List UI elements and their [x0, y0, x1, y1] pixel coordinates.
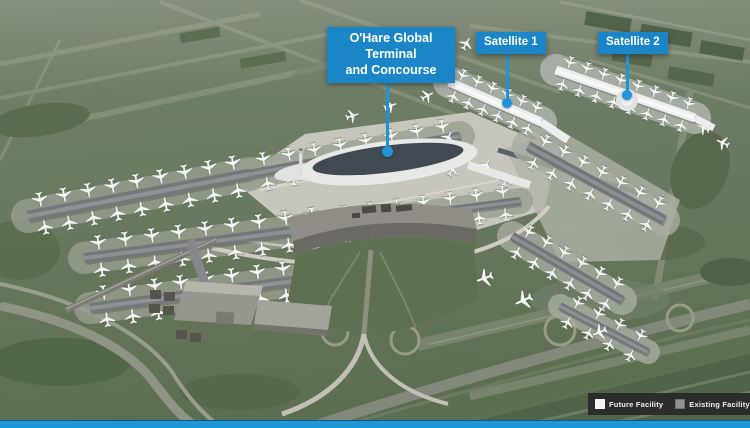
callout-global-terminal: O'Hare Global Terminal and Concourse — [327, 27, 455, 83]
callout-global-terminal-line1: O'Hare Global Terminal — [329, 30, 453, 62]
pointer-dot-global-terminal — [382, 146, 393, 157]
legend-label-existing: Existing Facility — [689, 400, 750, 409]
callout-satellite-2: Satellite 2 — [598, 32, 668, 54]
pointer-dot-satellite-2 — [622, 90, 632, 100]
pointer-line-satellite-1 — [506, 52, 509, 101]
legend-label-future: Future Facility — [609, 400, 663, 409]
airport-rendering-stage: O'Hare Global Terminal and Concourse Sat… — [0, 0, 750, 428]
pointer-dot-satellite-1 — [502, 98, 512, 108]
pointer-line-satellite-2 — [626, 52, 629, 92]
existing-facility-swatch-icon — [675, 399, 685, 409]
footer-accent-bar — [0, 420, 750, 428]
legend-item-future: Future Facility — [595, 399, 663, 409]
legend: Future Facility Existing Facility — [588, 393, 750, 415]
future-facility-swatch-icon — [595, 399, 605, 409]
legend-item-existing: Existing Facility — [675, 399, 750, 409]
callout-satellite-1: Satellite 1 — [476, 32, 546, 54]
callout-global-terminal-line2: and Concourse — [329, 62, 453, 78]
